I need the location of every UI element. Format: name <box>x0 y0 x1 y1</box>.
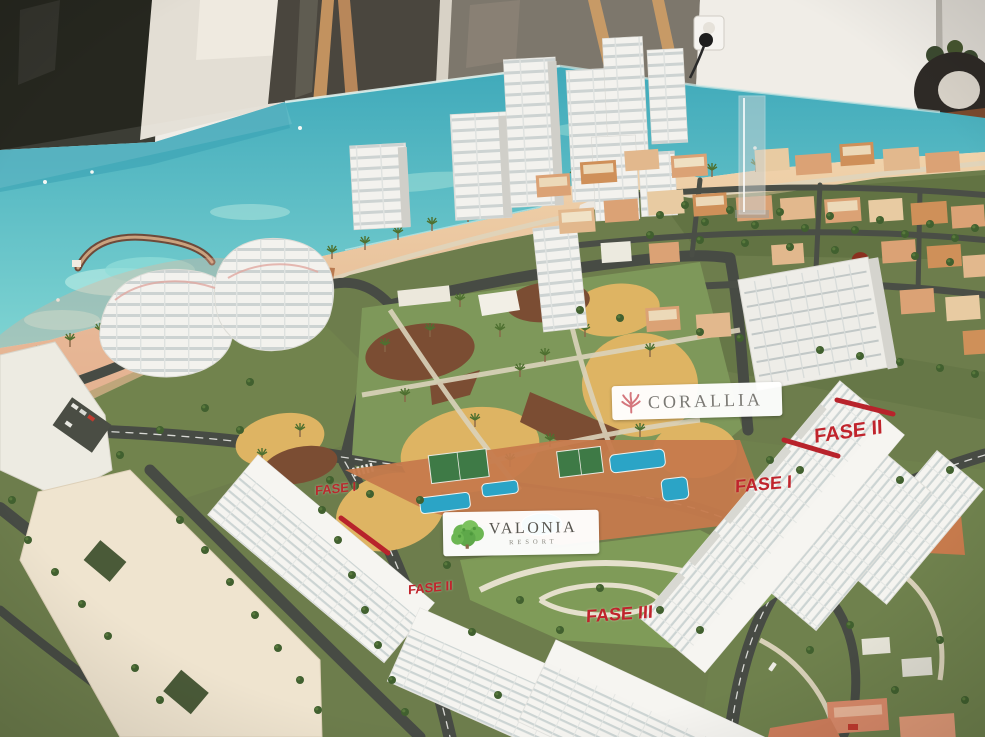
model-scene <box>0 0 985 737</box>
tree-icon <box>449 518 486 551</box>
corallia-badge: CORALLIA <box>612 382 783 420</box>
valonia-title: VALONIA <box>489 519 578 539</box>
valonia-subtitle: RESORT <box>509 538 558 546</box>
photo-of-resort-scale-model: CORALLIA VALONIA RESORT FASE II FASE I F… <box>0 0 985 737</box>
corallia-label: CORALLIA <box>648 389 764 413</box>
vignette <box>0 0 985 737</box>
valonia-badge: VALONIA RESORT <box>443 510 600 557</box>
coral-icon <box>618 389 645 416</box>
